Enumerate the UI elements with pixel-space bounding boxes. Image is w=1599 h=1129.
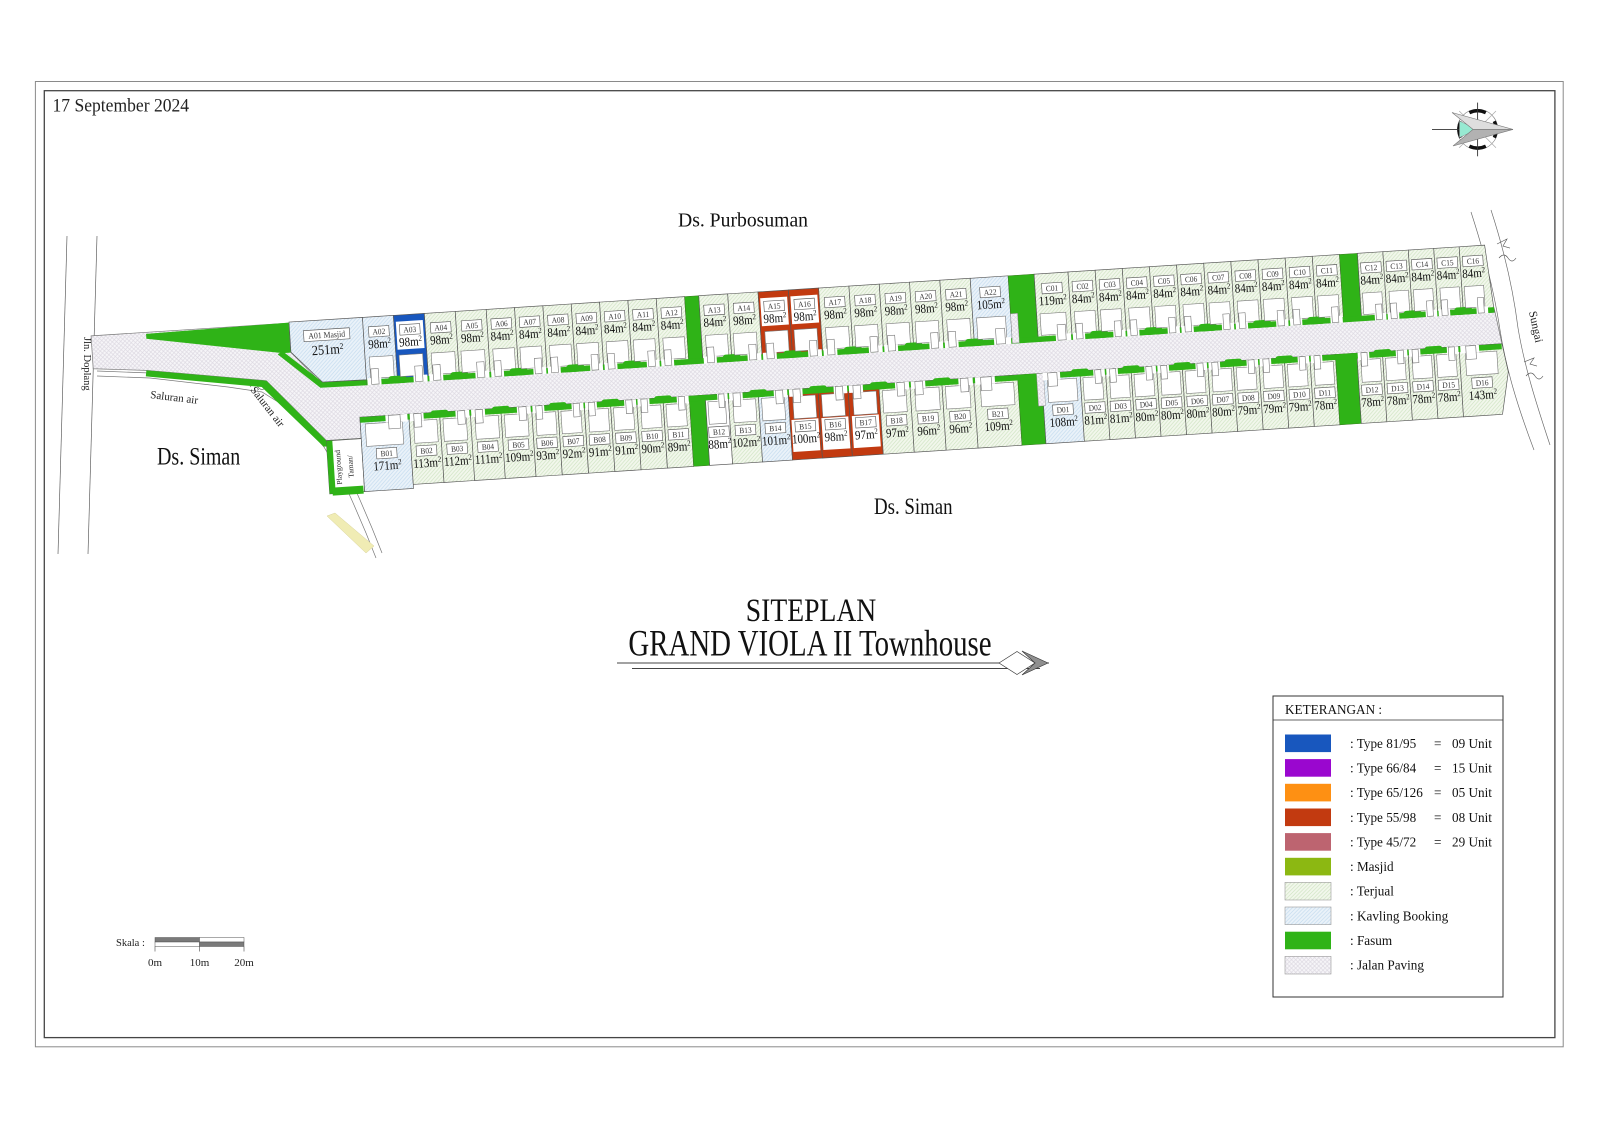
svg-text:Taman/: Taman/: [345, 454, 355, 478]
svg-text:15 Unit: 15 Unit: [1452, 760, 1492, 775]
svg-text:143m2: 143m2: [1468, 386, 1498, 403]
svg-text:113m2: 113m2: [413, 454, 442, 471]
svg-text:: Jalan Paving: : Jalan Paving: [1350, 958, 1424, 973]
svg-text:=: =: [1434, 785, 1441, 800]
svg-text:=: =: [1434, 834, 1441, 849]
svg-text:: Masjid: : Masjid: [1350, 859, 1394, 874]
svg-text:Ds. Purbosuman: Ds. Purbosuman: [678, 209, 808, 231]
svg-text:101m2: 101m2: [761, 432, 791, 449]
svg-text:=: =: [1434, 760, 1441, 775]
svg-text:0m: 0m: [148, 957, 163, 969]
svg-text:Ds. Siman: Ds. Siman: [157, 442, 240, 470]
svg-text:108m2: 108m2: [1049, 413, 1079, 430]
svg-text:119m2: 119m2: [1038, 292, 1067, 309]
svg-text:: Type 65/126: : Type 65/126: [1350, 785, 1423, 800]
svg-text:251m2: 251m2: [311, 340, 344, 358]
svg-text:08 Unit: 08 Unit: [1452, 810, 1492, 825]
svg-text:: Type 55/98: : Type 55/98: [1350, 810, 1417, 825]
svg-text:171m2: 171m2: [373, 457, 403, 474]
svg-text:Ds. Siman: Ds. Siman: [874, 493, 953, 519]
svg-text:20m: 20m: [234, 957, 254, 969]
svg-text:: Kavling Booking: : Kavling Booking: [1350, 908, 1449, 923]
svg-text:09 Unit: 09 Unit: [1452, 736, 1492, 751]
svg-text:100m2: 100m2: [791, 430, 821, 447]
svg-text:111m2: 111m2: [474, 450, 503, 467]
svg-text:109m2: 109m2: [505, 448, 535, 465]
svg-text:Jln. Doplang: Jln. Doplang: [81, 337, 92, 391]
svg-text:105m2: 105m2: [976, 296, 1006, 313]
svg-text:102m2: 102m2: [732, 434, 762, 451]
svg-text:29 Unit: 29 Unit: [1452, 834, 1492, 849]
svg-text:GRAND VIOLA II Townhouse: GRAND VIOLA II Townhouse: [628, 623, 991, 664]
svg-text:109m2: 109m2: [984, 417, 1014, 434]
svg-text:KETERANGAN :: KETERANGAN :: [1285, 702, 1382, 717]
svg-text:: Type 45/72: : Type 45/72: [1350, 834, 1416, 849]
svg-text:: Fasum: : Fasum: [1350, 933, 1393, 948]
svg-text:10m: 10m: [190, 957, 210, 969]
svg-text:: Type 66/84: : Type 66/84: [1350, 760, 1417, 775]
svg-text:05 Unit: 05 Unit: [1452, 785, 1492, 800]
svg-text:Skala :: Skala :: [116, 938, 145, 949]
svg-text:17 September 2024: 17 September 2024: [53, 95, 190, 116]
svg-text:: Type 81/95: : Type 81/95: [1350, 736, 1417, 751]
svg-text:=: =: [1434, 810, 1441, 825]
svg-text:: Terjual: : Terjual: [1350, 884, 1394, 899]
svg-text:112m2: 112m2: [443, 452, 472, 469]
svg-text:=: =: [1434, 736, 1441, 751]
